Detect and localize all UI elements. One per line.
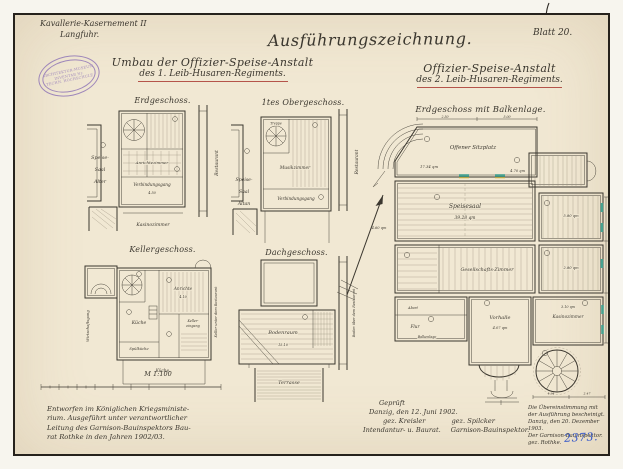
- museum-stamp-text: ARCHITEKTUR-MUSEUM INVENTAR Nr. TECHN. H…: [39, 55, 98, 98]
- dimension-label: 2.47: [583, 392, 591, 396]
- room-label-gesellschaft: Gesellschafts-Zimmer: [460, 267, 514, 273]
- plan-balkenlage: 2.50 5.00 Offener Sitzplatz 17.34 qm 4.7…: [367, 113, 609, 405]
- corner-line2: Langfuhr.: [40, 29, 147, 40]
- left-title-line2: des 1. Leib-Husaren-Regiments.: [105, 69, 320, 79]
- stair-treads: [535, 156, 581, 186]
- drawing-sheet: Kavallerie-Kasernement II Langfuhr. ARCH…: [13, 13, 610, 456]
- dimension-label: 4.94: [547, 392, 555, 396]
- curved-steps: [378, 124, 423, 169]
- dimension-line: [533, 395, 605, 399]
- left-title-line1: Umbau der Offizier-Speise-Anstalt: [105, 56, 320, 69]
- window-mark: [459, 177, 469, 178]
- main-title: Ausführungszeichnung.: [240, 29, 500, 51]
- right-title-block: Offizier-Speise-Anstalt des 2. Leib-Husa…: [387, 62, 592, 88]
- dimension-label: 17.34 qm: [420, 164, 439, 169]
- room-label-flur: Flur: [410, 324, 421, 329]
- museum-stamp: ARCHITEKTUR-MUSEUM INVENTAR Nr. TECHN. H…: [35, 50, 104, 102]
- plan-kellergeschoss: Anrichte 4.10 Küche Spülküche Keller- ei…: [83, 254, 225, 388]
- room-label-terrasse: Terrasse: [278, 380, 300, 386]
- plan-erdgeschoss: Speise- Saal Alter Anrichtezimmer Verbin…: [87, 105, 229, 233]
- red-underline-left: [138, 81, 288, 82]
- room-label-spuel: Spülküche: [129, 347, 148, 351]
- corner-line1: Kavallerie-Kasernement II: [40, 18, 147, 29]
- scale-bar: [39, 381, 224, 393]
- room-label-eingang: Keller-: [186, 319, 198, 323]
- sheet-number: Blatt 20.: [533, 28, 572, 38]
- window-mark: [601, 325, 604, 334]
- scanned-drawing-sheet: Kavallerie-Kasernement II Langfuhr. ARCH…: [0, 0, 623, 469]
- room-label-kasino: Kasinozimmer: [135, 222, 170, 228]
- spiral-stair-icon: [266, 126, 286, 146]
- room-label-gang: Wirtschaftsgang: [85, 310, 90, 342]
- window-mark: [495, 174, 505, 177]
- design-note: Entworfen im Königlichen Kriegsministe- …: [47, 405, 232, 442]
- plan-erdgeschoss-title: Erdgeschoss.: [105, 96, 220, 105]
- room-label-speisesaal: Speisesaal: [449, 203, 481, 210]
- scale-label: M 1:100: [113, 370, 203, 378]
- room-label-abort: Abort: [407, 306, 418, 310]
- window-mark: [601, 223, 604, 232]
- dimension-label: 5.00: [503, 115, 510, 119]
- room-label-anrichte: Anrichte: [173, 286, 193, 291]
- dimension-label: 15.10: [278, 343, 289, 347]
- room-label: Saal: [239, 189, 250, 195]
- signature-right: gez. Spilcker: [451, 417, 495, 426]
- left-title-block: Umbau der Offizier-Speise-Anstalt des 1.…: [105, 56, 320, 82]
- plan-keller-title: Kellergeschoss.: [105, 245, 220, 254]
- room-label: Alter: [93, 179, 107, 185]
- window-mark: [601, 203, 604, 212]
- room-label-restaurant: Restaurant: [355, 149, 360, 175]
- red-underline-right: [417, 87, 562, 88]
- north-arrow-icon: [331, 183, 393, 308]
- window-mark: [601, 259, 604, 268]
- spiral-stair-icon: [124, 120, 145, 141]
- room-label: Altan: [237, 201, 250, 207]
- room-label-treppe: Treppe: [270, 122, 282, 126]
- window-mark: [495, 177, 505, 178]
- dimension-label: 2.80 qm: [562, 266, 579, 270]
- room-label-vorhalle: Vorhalle: [490, 315, 511, 321]
- right-title-line2: des 2. Leib-Husaren-Regiments.: [387, 75, 592, 85]
- dimension-label: 5.80 qm: [563, 214, 579, 218]
- room-label-anrichte: Anrichtezimmer: [135, 160, 170, 165]
- room-label-kasino: Kasinozimmer: [551, 315, 584, 320]
- dimension-label: 4.10: [178, 295, 187, 299]
- role-left: Intendantur- u. Baurat.: [363, 426, 441, 435]
- right-title-line1: Offizier-Speise-Anstalt: [387, 62, 592, 75]
- room-label-sitzplatz: Offener Sitzplatz: [450, 145, 496, 151]
- window-mark: [459, 174, 469, 177]
- archive-number: 2373.: [564, 430, 599, 445]
- dimension-line: [604, 197, 608, 343]
- room-label-restaurant: Restaurant: [214, 150, 220, 177]
- dimension-label: 2.50: [440, 115, 448, 119]
- dimension-label: 39.28 qm: [455, 216, 476, 221]
- role-right: Garnison-Bauinspektor.: [451, 426, 530, 435]
- approval-block: Geprüft Danzig, den 12. Juni 1902. gez. …: [363, 399, 533, 435]
- dimension-label: 4.07 qm: [492, 326, 508, 330]
- room-label-musik: Musikzimmer: [279, 166, 311, 171]
- approval-place-date: Danzig, den 12. Juni 1902.: [369, 408, 533, 417]
- room-label-boden: Bodenraum: [267, 330, 298, 336]
- room-label: Speise-: [236, 177, 253, 183]
- dimension-label: 4.50: [147, 191, 156, 195]
- plan-obergeschoss-title: 1tes Obergeschoss.: [243, 98, 363, 107]
- room-label-gang: Verbindungsgang: [277, 196, 315, 201]
- window-mark: [601, 305, 604, 314]
- room-label: Speise-: [91, 155, 109, 161]
- signature-left: gez. Kreisler: [383, 417, 425, 426]
- room-label-kueche: Küche: [131, 320, 147, 326]
- room-label-eingang: eingang: [186, 324, 199, 328]
- room-label-rechts: Keller unter dem Restaurant: [214, 286, 218, 338]
- dimension-label: 4.70 qm: [509, 169, 525, 173]
- spiral-stair-icon: [122, 275, 142, 295]
- corner-annotation: Kavallerie-Kasernement II Langfuhr.: [40, 18, 147, 40]
- room-label: Saal: [95, 167, 106, 173]
- dimension-label: 3.10 qm: [561, 305, 575, 309]
- room-label-gang: Verbindungsgang: [133, 182, 171, 187]
- approval-checked: Geprüft: [379, 399, 533, 408]
- spiral-stair-icon: [534, 348, 581, 395]
- dimension-line: [417, 117, 537, 121]
- room-label-balkenlage: Balkenlage: [417, 335, 437, 339]
